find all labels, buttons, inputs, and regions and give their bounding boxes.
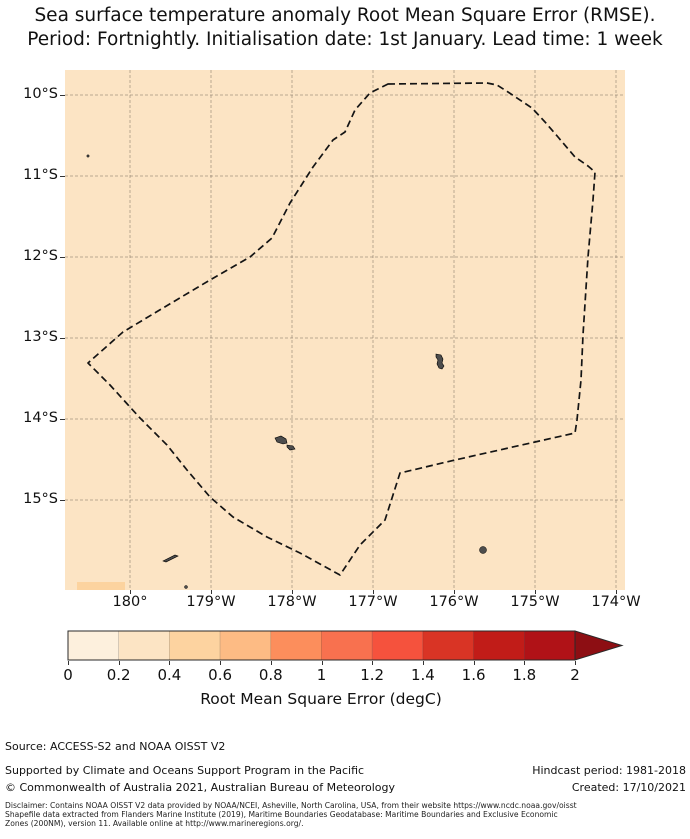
x-axis-tick-label: 177°W [338,594,408,610]
x-axis-tick-label: 178°W [257,594,327,610]
colorbar-tick-mark [271,661,272,665]
colorbar-tick-mark [474,661,475,665]
colorbar-tick-mark [119,661,120,665]
x-axis-tick-mark [616,590,617,594]
copyright-text: © Commonwealth of Australia 2021, Austra… [5,781,395,794]
y-axis-tick-mark [60,419,65,420]
y-axis-tick-mark [60,500,65,501]
map-panel [65,70,625,590]
y-axis-tick-label: 14°S [0,410,58,426]
y-axis-tick-label: 11°S [0,167,58,183]
colorbar-tick-label: 1 [294,666,350,684]
x-axis-tick-label: 175°W [500,594,570,610]
figure-title: Sea surface temperature anomaly Root Mea… [0,4,690,52]
colorbar-tick-label: 1.8 [496,666,552,684]
colorbar-tick-mark [68,661,69,665]
colorbar-title: Root Mean Square Error (degC) [146,690,496,708]
x-axis-tick-label: 174°W [581,594,651,610]
colorbar-tick-mark [169,661,170,665]
colorbar-bin-0.6-0.8 [220,631,271,660]
colorbar-bin-0.2-0.4 [119,631,170,660]
colorbar-bin-1.4-1.6 [423,631,474,660]
colorbar-tick-mark [322,661,323,665]
colorbar [67,630,627,663]
y-axis-tick-mark [60,95,65,96]
island-dot [185,586,188,589]
x-axis-tick-label: 176°W [419,594,489,610]
x-axis-tick-mark [454,590,455,594]
colorbar-bin-1-1.2 [322,631,373,660]
rmse-hot-cell [77,582,125,590]
map-canvas [65,70,625,590]
supported-text: Supported by Climate and Oceans Support … [5,764,364,777]
colorbar-tick-label: 0.4 [141,666,197,684]
y-axis-tick-mark [60,338,65,339]
colorbar-canvas [67,630,627,663]
x-axis-tick-mark [292,590,293,594]
colorbar-tick-label: 2 [547,666,603,684]
figure-root: Sea surface temperature anomaly Root Mea… [0,0,690,839]
colorbar-tick-mark [524,661,525,665]
colorbar-tick-label: 1.4 [395,666,451,684]
x-axis-tick-label: 180° [95,594,165,610]
disclaimer-line3: Zones (200NM), version 11. Available onl… [5,820,690,829]
colorbar-bin-0-0.2 [68,631,119,660]
y-axis-tick-label: 13°S [0,329,58,345]
x-axis-tick-mark [373,590,374,594]
x-axis-tick-mark [130,590,131,594]
colorbar-bin-1.6-1.8 [474,631,525,660]
x-axis-tick-mark [211,590,212,594]
colorbar-tick-mark [372,661,373,665]
colorbar-tick-label: 0 [40,666,96,684]
colorbar-bin-1.8-2 [524,631,575,660]
y-axis-tick-mark [60,257,65,258]
colorbar-extend-arrow [575,631,622,660]
y-axis-tick-mark [60,176,65,177]
colorbar-tick-label: 1.6 [446,666,502,684]
colorbar-tick-label: 0.2 [91,666,147,684]
island-dot [87,155,89,157]
colorbar-bin-0.8-1 [271,631,322,660]
sea-fill [65,70,625,590]
source-text: Source: ACCESS-S2 and NOAA OISST V2 [5,740,225,753]
colorbar-tick-label: 0.8 [243,666,299,684]
colorbar-bin-0.4-0.6 [169,631,220,660]
colorbar-tick-mark [423,661,424,665]
created-date-text: Created: 17/10/2021 [572,781,686,794]
colorbar-tick-mark [220,661,221,665]
colorbar-tick-label: 0.6 [192,666,248,684]
colorbar-tick-mark [575,661,576,665]
island-dot [480,547,487,554]
figure-title-line1: Sea surface temperature anomaly Root Mea… [0,4,690,28]
colorbar-bin-1.2-1.4 [372,631,423,660]
x-axis-tick-label: 179°W [176,594,246,610]
hindcast-period-text: Hindcast period: 1981-2018 [532,764,686,777]
y-axis-tick-label: 12°S [0,248,58,264]
colorbar-tick-label: 1.2 [344,666,400,684]
figure-title-line2: Period: Fortnightly. Initialisation date… [0,28,690,52]
y-axis-tick-label: 15°S [0,491,58,507]
y-axis-tick-label: 10°S [0,86,58,102]
x-axis-tick-mark [535,590,536,594]
